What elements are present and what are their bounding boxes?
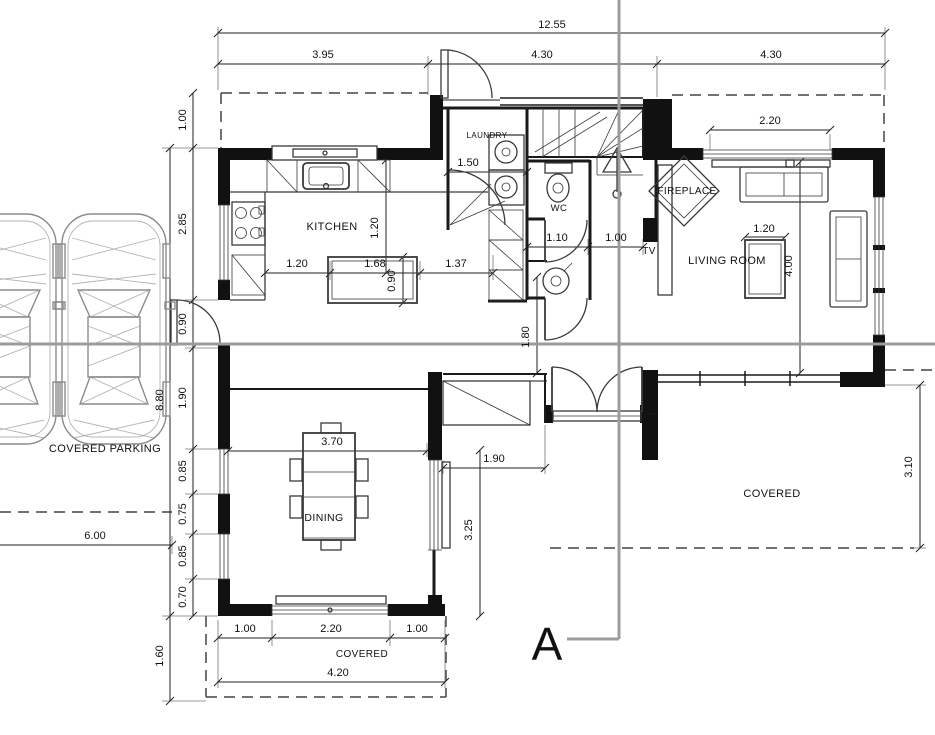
- dining-chair-right-1: [356, 459, 368, 481]
- dining-south-window: [272, 596, 388, 616]
- dim-left-7: 0.85: [177, 545, 189, 566]
- sofa-right: [830, 211, 867, 307]
- stove-icon: [232, 202, 265, 245]
- washer-icon: [489, 135, 524, 170]
- dim-bottom-3: 1.00: [406, 623, 427, 635]
- pantry-shelves: [489, 210, 523, 300]
- terrace-beam-edge: [658, 371, 840, 386]
- dim-top-overall: 12.55: [538, 19, 566, 31]
- coffee-table: [745, 240, 785, 298]
- sofa-top: [740, 167, 828, 202]
- room-label-kitchen: KITCHEN: [306, 221, 357, 233]
- wall-west-4: [218, 494, 230, 534]
- sink-icon: [303, 163, 349, 189]
- wall-west-5: [218, 579, 230, 616]
- room-label-covered-terrace: COVERED: [743, 488, 800, 500]
- kitchen-window: [272, 146, 377, 160]
- dim-bottom-overall: 4.20: [327, 667, 348, 679]
- room-label-wc: WC: [551, 203, 568, 214]
- dim-living-window: 2.20: [759, 115, 780, 127]
- lobby-door: [545, 298, 587, 340]
- dim-living-depth: 4.00: [783, 255, 795, 276]
- dining-chair-top: [321, 423, 341, 433]
- wall-west-1: [218, 148, 230, 205]
- dim-left-1: 1.00: [177, 109, 189, 130]
- dim-left-2: 2.85: [177, 213, 189, 234]
- dim-kitchen-row-1: 1.20: [286, 258, 307, 270]
- dim-terrace-depth: 3.10: [903, 456, 915, 477]
- parked-cars: [0, 214, 175, 444]
- dim-bottom-1: 1.00: [234, 623, 255, 635]
- dim-parking-width: 6.00: [84, 530, 105, 542]
- dining-chair-right-2: [356, 496, 368, 518]
- dim-dining-table: 3.70: [321, 436, 342, 448]
- double-terrace-door: [552, 367, 642, 421]
- dim-left-8: 0.70: [177, 586, 189, 607]
- wall-living-top-left: [657, 148, 703, 160]
- wall-west-3: [218, 345, 230, 449]
- dim-coffee-table: 1.20: [753, 223, 774, 235]
- entry-north-wall: [500, 98, 643, 105]
- room-label-dining: DINING: [304, 512, 343, 524]
- wall-living-south-corner: [840, 372, 885, 387]
- dimension-line-set: [0, 33, 920, 701]
- dim-left-6: 0.75: [177, 503, 189, 524]
- room-label-covered-porch: COVERED: [336, 649, 388, 660]
- hall-bench: [443, 381, 530, 425]
- room-label-tv: TV: [642, 246, 656, 257]
- wall-dining-south-right: [388, 604, 445, 616]
- dining-chair-left-2: [290, 496, 302, 518]
- dining-west-window-2: [218, 534, 230, 579]
- dim-laundry-width: 1.50: [457, 157, 478, 169]
- dim-top-seg1: 3.95: [312, 49, 333, 61]
- room-label-covered-parking: COVERED PARKING: [49, 443, 161, 455]
- dryer-icon: [489, 170, 524, 205]
- room-label-living: LIVING ROOM: [688, 255, 766, 267]
- dim-left-3: 0.90: [177, 313, 189, 334]
- dim-left-5: 0.85: [177, 460, 189, 481]
- dim-island-depth: 0.90: [386, 270, 398, 291]
- dimension-lines: [0, 27, 926, 705]
- floor-plan-canvas: 12.55 3.95 4.30 4.30 2.20 1.00 2.85 0.90…: [0, 0, 935, 735]
- wall-hall-pier: [643, 218, 658, 242]
- toilet-icon: [545, 163, 572, 202]
- dim-left-4: 1.90: [177, 387, 189, 408]
- wall-dining-ne-pier: [428, 372, 442, 460]
- labels: 12.55 3.95 4.30 4.30 2.20 1.00 2.85 0.90…: [49, 19, 915, 679]
- entrance-door: [441, 50, 492, 98]
- tv-console: [658, 165, 672, 295]
- section-line-vertical: [567, 0, 619, 639]
- dim-top-seg3: 4.30: [760, 49, 781, 61]
- room-label-laundry: LAUNDRY: [467, 131, 508, 140]
- dim-left-overall: 8.80: [154, 389, 166, 410]
- basin-icon: [543, 263, 572, 294]
- dining-east-window: [428, 460, 450, 550]
- dining-west-window-1: [218, 449, 230, 494]
- wall-west-2: [218, 280, 230, 300]
- car-left: [0, 214, 65, 444]
- dim-kitchen-row-3: 1.37: [445, 258, 466, 270]
- wc-fixtures: [543, 163, 572, 294]
- wall-entry-pier-west: [430, 95, 443, 160]
- wall-living-right-upper: [873, 148, 885, 197]
- living-east-windows: [873, 197, 885, 335]
- room-label-fireplace: FIREPLACE: [657, 186, 716, 197]
- laundry-fixtures: [489, 135, 524, 205]
- dim-wc-width: 1.10: [546, 232, 567, 244]
- dining-furniture: [290, 381, 530, 550]
- dim-kitchen-vert: 1.20: [369, 217, 381, 238]
- dashed-outlines: [0, 93, 935, 697]
- dim-bottom-2: 2.20: [320, 623, 341, 635]
- dining-chair-bottom: [321, 540, 341, 550]
- floor-plan-page: 12.55 3.95 4.30 4.30 2.20 1.00 2.85 0.90…: [0, 0, 935, 735]
- section-marker-label: A: [532, 618, 563, 670]
- dim-kitchen-row-2: 1.68: [364, 258, 385, 270]
- dim-left-porch: 1.60: [154, 645, 166, 666]
- dim-top-seg2: 4.30: [531, 49, 552, 61]
- living-top-window: [703, 148, 832, 167]
- dim-dining-depth: 3.25: [463, 519, 475, 540]
- dim-recess-width: 1.90: [483, 453, 504, 465]
- kitchen-west-window: [218, 205, 230, 280]
- dining-chair-left-1: [290, 459, 302, 481]
- dim-hall-vert: 1.80: [520, 326, 532, 347]
- dim-hall-width: 1.00: [605, 232, 626, 244]
